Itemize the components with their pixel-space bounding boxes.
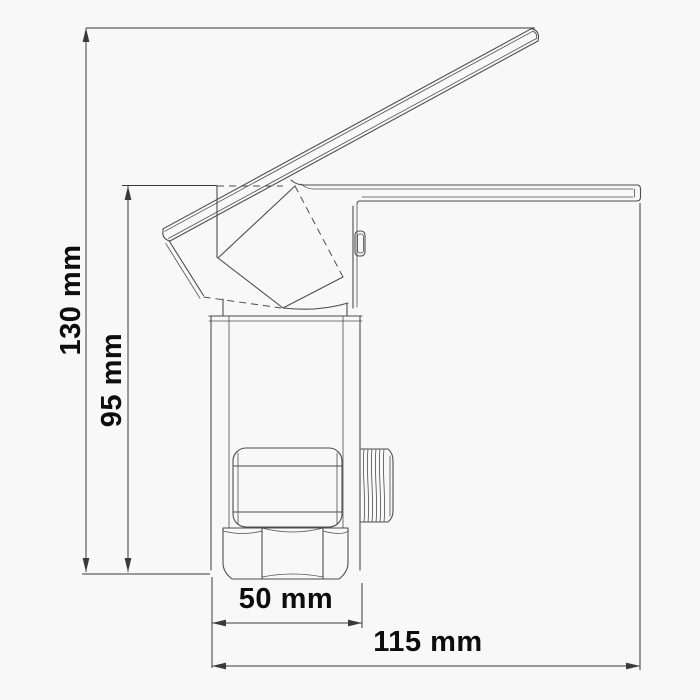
hex-nut bbox=[223, 528, 348, 579]
faucet-technical-drawing: 130 mm 95 mm 50 mm 115 mm bbox=[0, 0, 700, 700]
cartridge-window bbox=[233, 448, 342, 527]
dim-arrow-left-icon bbox=[212, 663, 226, 670]
dim-arrow-left-icon bbox=[212, 620, 226, 627]
dimension-label-body-height: 95 mm bbox=[96, 333, 128, 427]
dim-arrow-up-icon bbox=[83, 28, 90, 42]
faucet-drawing bbox=[163, 29, 641, 579]
dim-arrow-down-icon bbox=[125, 558, 132, 572]
dim-arrow-right-icon bbox=[348, 620, 362, 627]
faucet-spout bbox=[291, 180, 641, 204]
dimension-overall-height: 130 mm bbox=[55, 28, 535, 574]
dimension-label-base-width: 50 mm bbox=[239, 583, 333, 615]
thread-outlet bbox=[361, 449, 393, 522]
dimension-base-width: 50 mm bbox=[212, 577, 362, 668]
handle-cap bbox=[166, 186, 348, 309]
dimension-label-overall-height: 130 mm bbox=[55, 244, 87, 355]
dim-arrow-up-icon bbox=[125, 186, 132, 200]
dimension-body-height: 95 mm bbox=[96, 186, 217, 573]
dim-arrow-down-icon bbox=[83, 558, 90, 572]
dim-arrow-right-icon bbox=[626, 663, 640, 670]
dimension-label-overall-depth: 115 mm bbox=[373, 626, 482, 658]
technical-drawing-canvas: 130 mm 95 mm 50 mm 115 mm bbox=[0, 0, 700, 700]
lever-handle bbox=[163, 29, 539, 241]
head-block bbox=[217, 186, 365, 308]
